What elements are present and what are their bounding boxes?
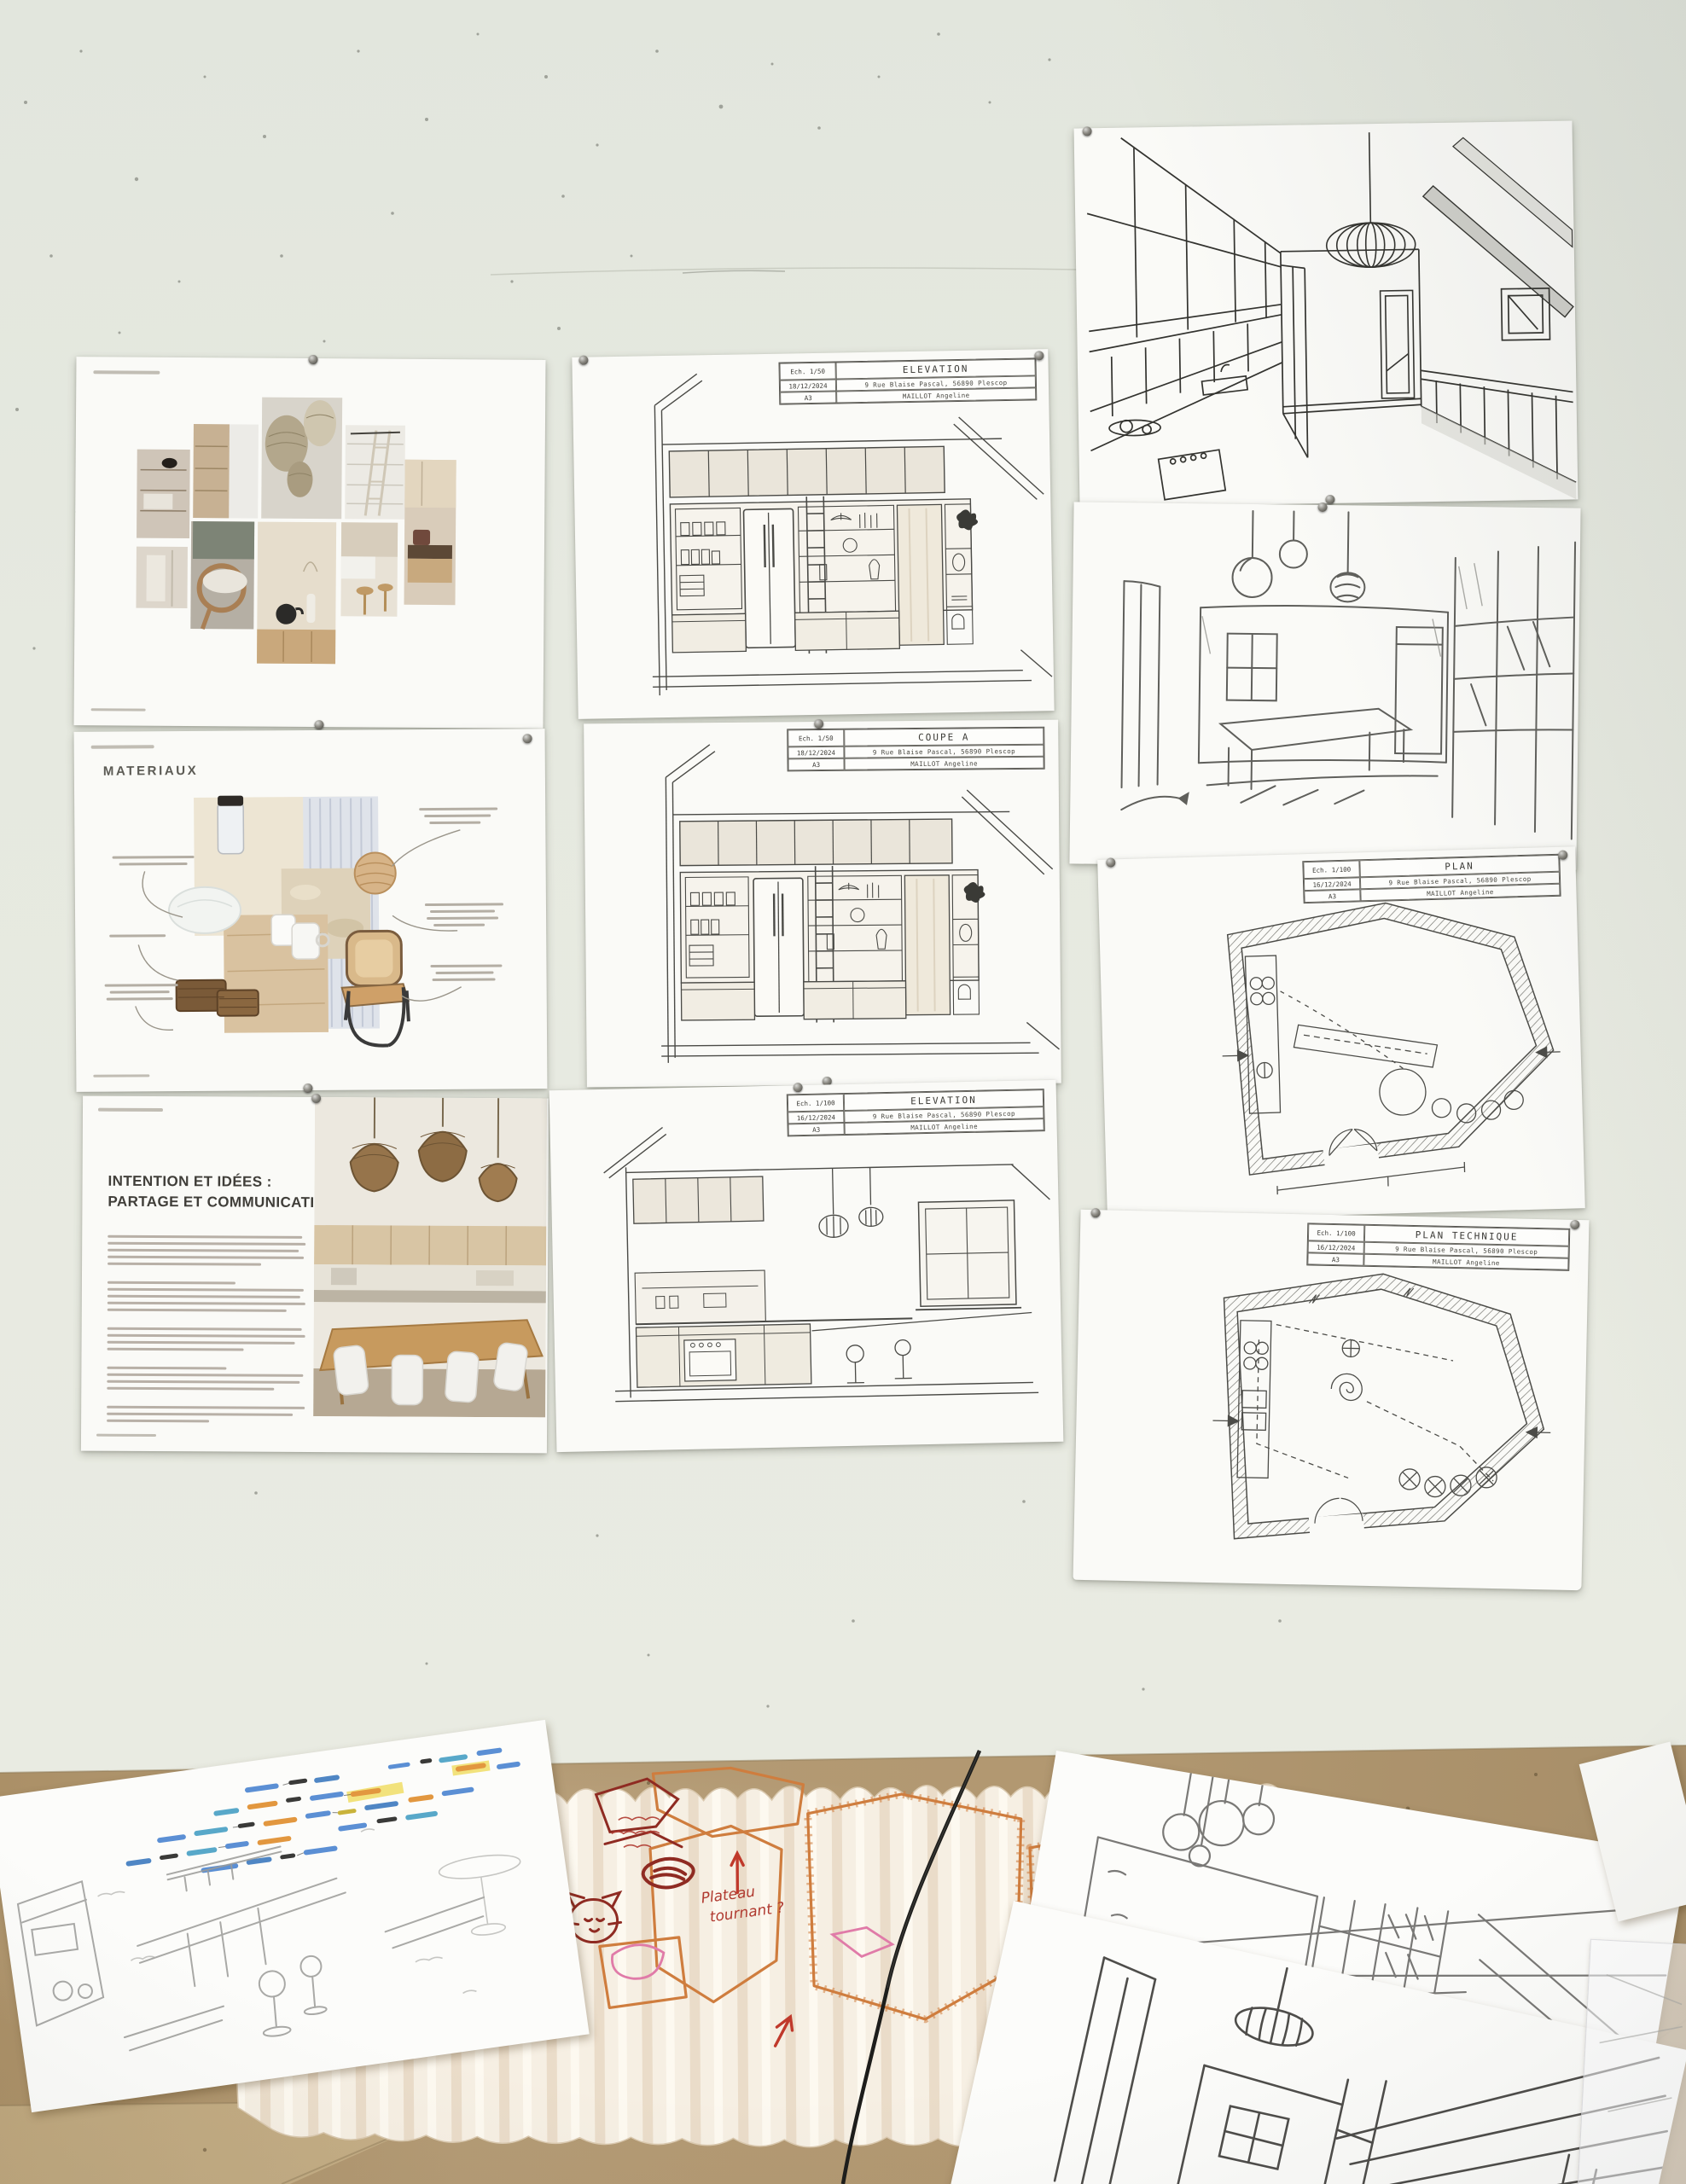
title-block-title: COUPE A bbox=[844, 728, 1044, 746]
sheet-plan-technique: Ech. 1/100 PLAN TECHNIQUE 16/12/2024 9 R… bbox=[1073, 1210, 1590, 1590]
sheet-plan: Ech. 1/100 PLAN 16/12/2024 9 Rue Blaise … bbox=[1097, 846, 1585, 1221]
title-block: Ech. 1/50 COUPE A 18/12/2024 9 Rue Blais… bbox=[787, 727, 1044, 772]
title-block-date: 18/12/2024 bbox=[788, 746, 844, 759]
sheet-intention: INTENTION ET IDÉES : PARTAGE ET COMMUNIC… bbox=[81, 1096, 549, 1454]
sheet-coupe: Ech. 1/50 COUPE A 18/12/2024 9 Rue Blais… bbox=[584, 720, 1061, 1088]
push-pin bbox=[523, 734, 532, 743]
intention-footer-text bbox=[96, 1434, 156, 1437]
title-block-scale: Ech. 1/100 bbox=[1303, 860, 1360, 879]
sheet-moodboard bbox=[73, 357, 545, 729]
intention-body-text bbox=[107, 1231, 305, 1427]
title-block-format: A3 bbox=[788, 758, 845, 771]
title-block-format: A3 bbox=[1304, 889, 1360, 903]
sheet-elevation-top: Ech. 1/50 ELEVATION 18/12/2024 9 Rue Bla… bbox=[572, 349, 1054, 719]
push-pin bbox=[1083, 126, 1092, 136]
title-block-scale: Ech. 1/100 bbox=[788, 1094, 844, 1112]
elevation-drawing bbox=[572, 349, 1054, 719]
sheet-perspective-ink bbox=[1074, 120, 1578, 507]
perspective-ink-drawing bbox=[1074, 120, 1578, 507]
push-pin bbox=[314, 720, 323, 729]
materials-collage bbox=[74, 729, 548, 1092]
title-block-format: A3 bbox=[1307, 1252, 1363, 1265]
sheet-materials: MATERIAUX bbox=[74, 729, 548, 1092]
push-pin bbox=[1317, 502, 1327, 512]
push-pin bbox=[814, 719, 823, 729]
title-block: Ech. 1/100 ELEVATION 16/12/2024 9 Rue Bl… bbox=[787, 1089, 1045, 1136]
title-block-author: MAILLOT Angeline bbox=[845, 757, 1044, 770]
title-block: Ech. 1/100 PLAN 16/12/2024 9 Rue Blaise … bbox=[1302, 854, 1561, 903]
intention-heading-line2: PARTAGE ET COMMUNICATION bbox=[108, 1192, 336, 1213]
sheet-elevation-bottom: Ech. 1/100 ELEVATION 16/12/2024 9 Rue Bl… bbox=[549, 1080, 1064, 1452]
title-block: Ech. 1/50 ELEVATION 18/12/2024 9 Rue Bla… bbox=[778, 357, 1037, 404]
title-block-date: 16/12/2024 bbox=[1308, 1240, 1364, 1253]
sheet-perspective-sketch bbox=[1069, 502, 1580, 869]
title-block-author: MAILLOT Angeline bbox=[836, 387, 1036, 403]
kitchen-photo bbox=[313, 1097, 547, 1417]
intention-heading-line1: INTENTION ET IDÉES : bbox=[108, 1171, 337, 1193]
title-block-scale: Ech. 1/100 bbox=[1308, 1223, 1364, 1241]
intention-header-text bbox=[98, 1108, 163, 1112]
title-block-format: A3 bbox=[788, 1123, 845, 1136]
title-block-scale: Ech. 1/50 bbox=[788, 729, 844, 747]
plan-drawing bbox=[1097, 846, 1585, 1221]
title-block-date: 16/12/2024 bbox=[788, 1111, 844, 1124]
push-pin bbox=[303, 1083, 312, 1093]
coupe-drawing bbox=[584, 720, 1061, 1088]
title-block-format: A3 bbox=[780, 392, 836, 404]
perspective-sketch-drawing bbox=[1069, 502, 1580, 869]
intention-heading: INTENTION ET IDÉES : PARTAGE ET COMMUNIC… bbox=[108, 1171, 337, 1213]
title-block: Ech. 1/100 PLAN TECHNIQUE 16/12/2024 9 R… bbox=[1306, 1223, 1570, 1270]
push-pin bbox=[311, 1094, 321, 1103]
title-block-date: 18/12/2024 bbox=[780, 380, 836, 392]
moodboard-collage bbox=[73, 357, 545, 729]
studio-photo-scene: MATERIAUX bbox=[0, 0, 1686, 2184]
tracing-paper bbox=[1577, 1939, 1686, 2184]
push-pin bbox=[308, 355, 317, 364]
title-block-scale: Ech. 1/50 bbox=[779, 363, 835, 380]
